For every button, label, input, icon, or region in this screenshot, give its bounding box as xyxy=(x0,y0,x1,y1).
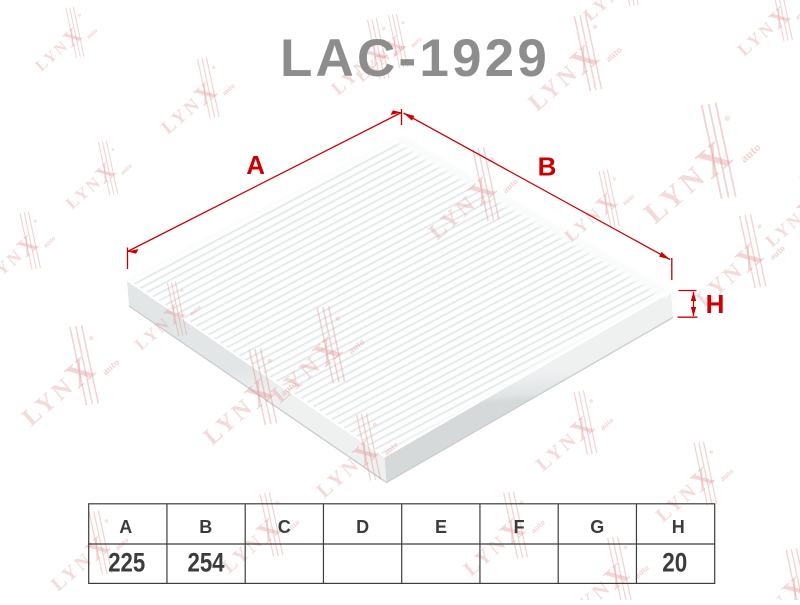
svg-text:C: C xyxy=(278,517,291,537)
svg-text:20: 20 xyxy=(662,548,687,578)
svg-text:F: F xyxy=(514,517,525,537)
svg-text:254: 254 xyxy=(188,548,225,578)
svg-text:LAC-1929: LAC-1929 xyxy=(280,29,550,88)
svg-text:G: G xyxy=(590,517,604,537)
svg-text:B: B xyxy=(538,152,557,182)
svg-text:E: E xyxy=(435,517,447,537)
svg-text:A: A xyxy=(246,150,265,180)
svg-text:225: 225 xyxy=(108,548,145,578)
svg-text:H: H xyxy=(706,289,725,319)
svg-text:H: H xyxy=(672,517,685,537)
svg-text:A: A xyxy=(119,517,132,537)
svg-text:B: B xyxy=(199,517,212,537)
svg-text:D: D xyxy=(356,517,369,537)
